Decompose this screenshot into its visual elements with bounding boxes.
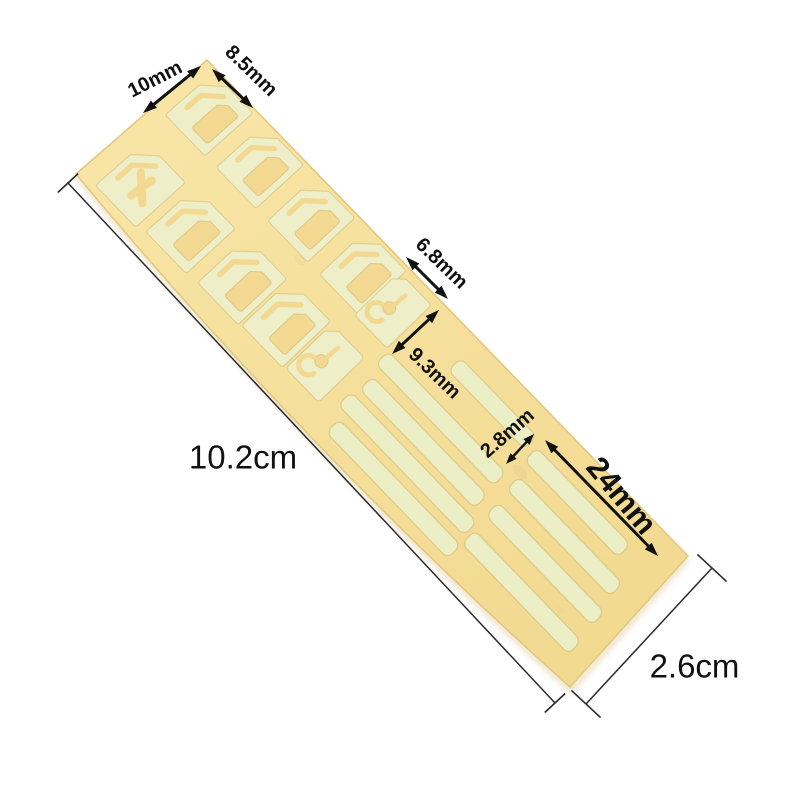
svg-text:10mm: 10mm — [124, 56, 185, 102]
svg-text:6.8mm: 6.8mm — [411, 234, 472, 294]
svg-text:24mm: 24mm — [580, 450, 664, 541]
svg-text:9.3mm: 9.3mm — [404, 344, 465, 404]
svg-text:10.2cm: 10.2cm — [189, 439, 297, 476]
svg-text:8.5mm: 8.5mm — [221, 41, 282, 101]
svg-text:2.6cm: 2.6cm — [650, 648, 740, 685]
svg-text:2.8mm: 2.8mm — [476, 404, 538, 462]
